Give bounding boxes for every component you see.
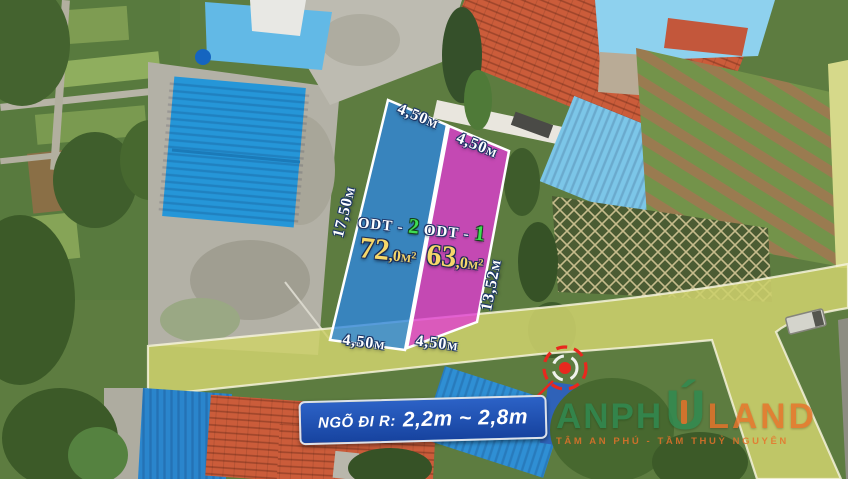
water-tank xyxy=(195,49,211,65)
brand-name: ANPH Ú LAND xyxy=(556,386,817,434)
plot1-area-label: 63,0m² xyxy=(425,240,485,276)
plot1-area-unit: ,0m² xyxy=(455,254,484,274)
brand-watermark: ANPH Ú LAND TÂM AN PHÚ - TẦM THUỶ NGUYÊN xyxy=(556,386,817,446)
road-width-sign: NGÕ ĐI R: 2,2m ~ 2,8m xyxy=(298,395,547,445)
plot2-area-value: 72 xyxy=(358,231,391,267)
aerial-photo-listing: 4,50m 4,50m 17,50m 13,52m 4,50m 4,50m OD… xyxy=(0,0,848,479)
plot2-area-unit: ,0m² xyxy=(388,247,417,267)
road-sign-prefix: NGÕ ĐI R: xyxy=(318,412,396,431)
plot2-area-label: 72,0m² xyxy=(358,233,418,269)
brand-part-land: LAND xyxy=(708,399,817,434)
brand-part-anph: ANPH xyxy=(556,399,663,434)
plot1-area-value: 63 xyxy=(425,238,458,274)
brand-letter-u: Ú xyxy=(665,386,705,434)
road-sign-range: 2,2m ~ 2,8m xyxy=(403,405,529,432)
